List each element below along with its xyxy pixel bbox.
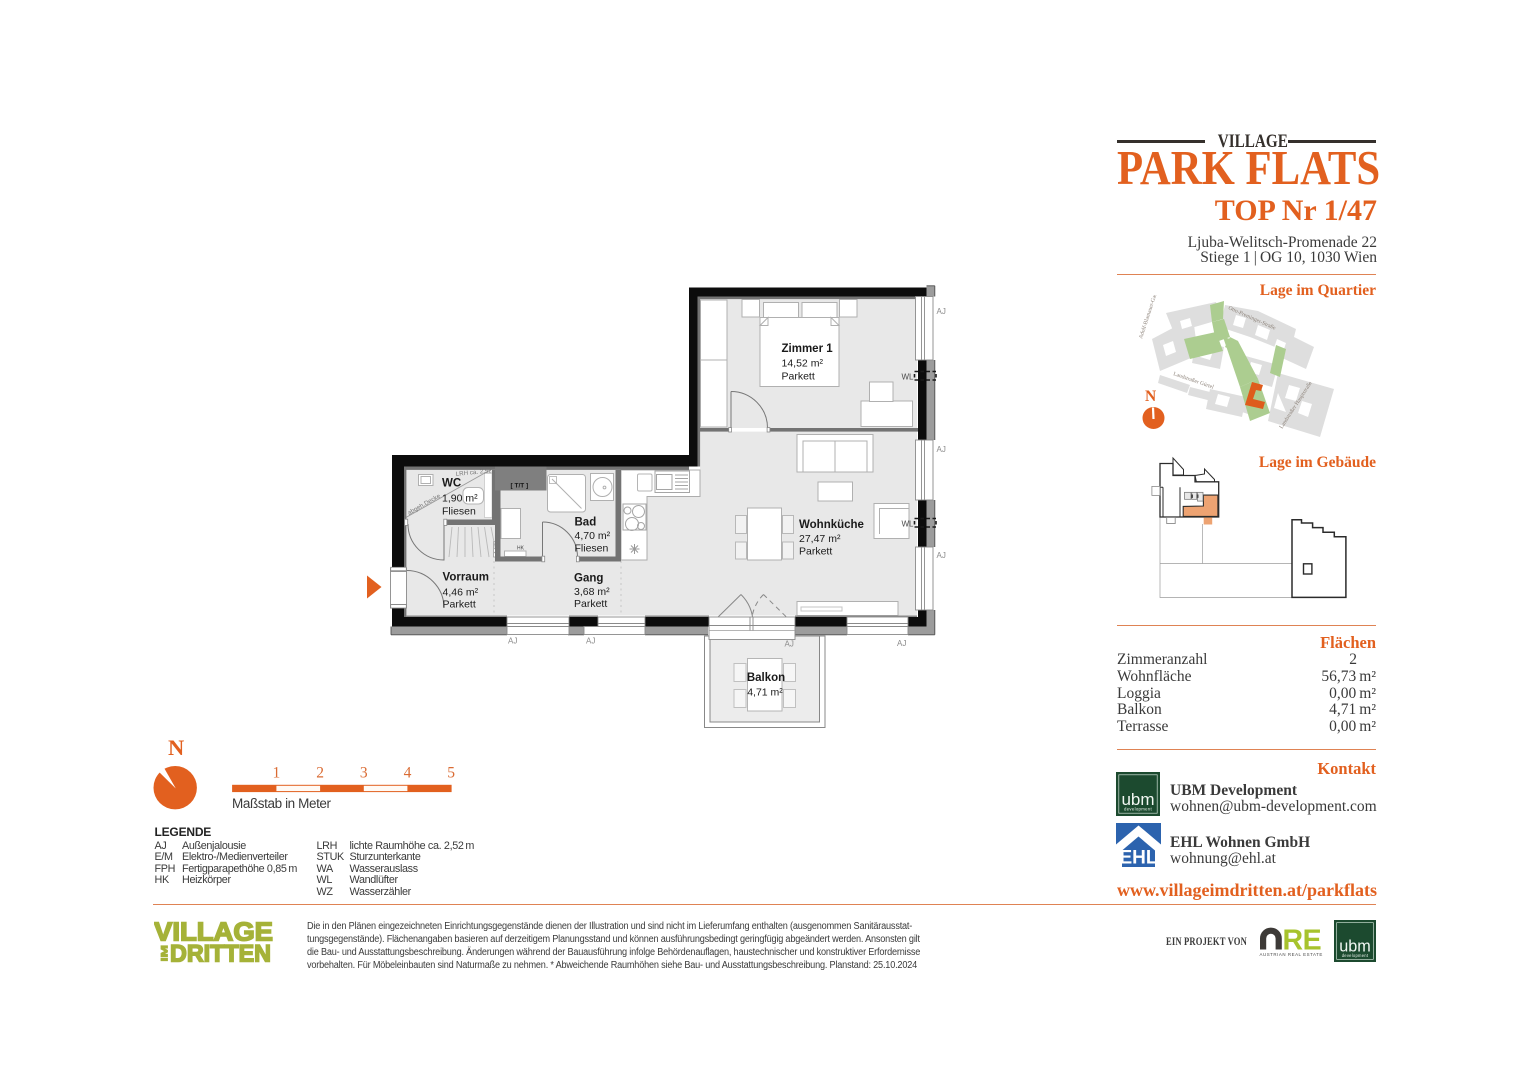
svg-text:Parkett: Parkett bbox=[443, 599, 476, 611]
svg-text:[ T/T ]: [ T/T ] bbox=[511, 483, 529, 490]
svg-text:Wohnküche: Wohnküche bbox=[799, 519, 864, 531]
svg-text:AJ: AJ bbox=[937, 307, 946, 316]
svg-text:2: 2 bbox=[316, 765, 324, 782]
svg-text:Gang: Gang bbox=[574, 573, 603, 585]
svg-text:4,71 m²: 4,71 m² bbox=[747, 687, 783, 699]
svg-text:AJ: AJ bbox=[508, 637, 517, 646]
svg-text:AJ: AJ bbox=[937, 551, 946, 560]
svg-text:Balkon: Balkon bbox=[747, 672, 785, 684]
svg-text:Vorraum: Vorraum bbox=[443, 572, 489, 584]
svg-text:N: N bbox=[168, 735, 184, 760]
svg-text:14,52 m²: 14,52 m² bbox=[782, 358, 824, 370]
svg-text:AJ: AJ bbox=[785, 640, 794, 649]
svg-text:Adolf-Blamauer-Gasse: Adolf-Blamauer-Gasse bbox=[1137, 295, 1160, 340]
svg-text:4,70 m²: 4,70 m² bbox=[575, 530, 611, 542]
svg-text:WL: WL bbox=[902, 520, 915, 529]
svg-text:3: 3 bbox=[360, 765, 368, 782]
svg-text:27,47 m²: 27,47 m² bbox=[799, 533, 841, 545]
svg-text:IM: IM bbox=[160, 945, 170, 962]
svg-text:Fliesen: Fliesen bbox=[442, 506, 476, 518]
svg-text:Fliesen: Fliesen bbox=[575, 543, 609, 555]
svg-text:3,68 m²: 3,68 m² bbox=[574, 586, 610, 598]
svg-text:1: 1 bbox=[273, 765, 281, 782]
svg-text:development: development bbox=[1124, 807, 1152, 812]
svg-text:WC: WC bbox=[442, 478, 461, 490]
svg-text:Parkett: Parkett bbox=[782, 371, 815, 383]
svg-text:4,46 m²: 4,46 m² bbox=[443, 587, 479, 599]
svg-text:development: development bbox=[1342, 953, 1369, 958]
svg-text:AUSTRIAN REAL ESTATE: AUSTRIAN REAL ESTATE bbox=[1260, 952, 1323, 957]
svg-text:HK: HK bbox=[517, 546, 525, 552]
svg-text:Parkett: Parkett bbox=[799, 546, 832, 558]
svg-text:AJ: AJ bbox=[937, 445, 946, 454]
svg-text:DRITTEN: DRITTEN bbox=[170, 941, 271, 967]
svg-text:AJ: AJ bbox=[586, 637, 595, 646]
svg-text:N: N bbox=[1145, 388, 1156, 405]
svg-text:EHL: EHL bbox=[1120, 848, 1158, 868]
svg-text:4: 4 bbox=[404, 765, 412, 782]
svg-text:Parkett: Parkett bbox=[574, 598, 607, 610]
svg-text:AJ: AJ bbox=[897, 639, 906, 648]
svg-text:WL: WL bbox=[902, 373, 915, 382]
svg-text:Bad: Bad bbox=[575, 517, 597, 529]
svg-text:1,90 m²: 1,90 m² bbox=[442, 493, 478, 505]
svg-text:5: 5 bbox=[447, 765, 455, 782]
svg-text:Zimmer 1: Zimmer 1 bbox=[782, 343, 834, 355]
